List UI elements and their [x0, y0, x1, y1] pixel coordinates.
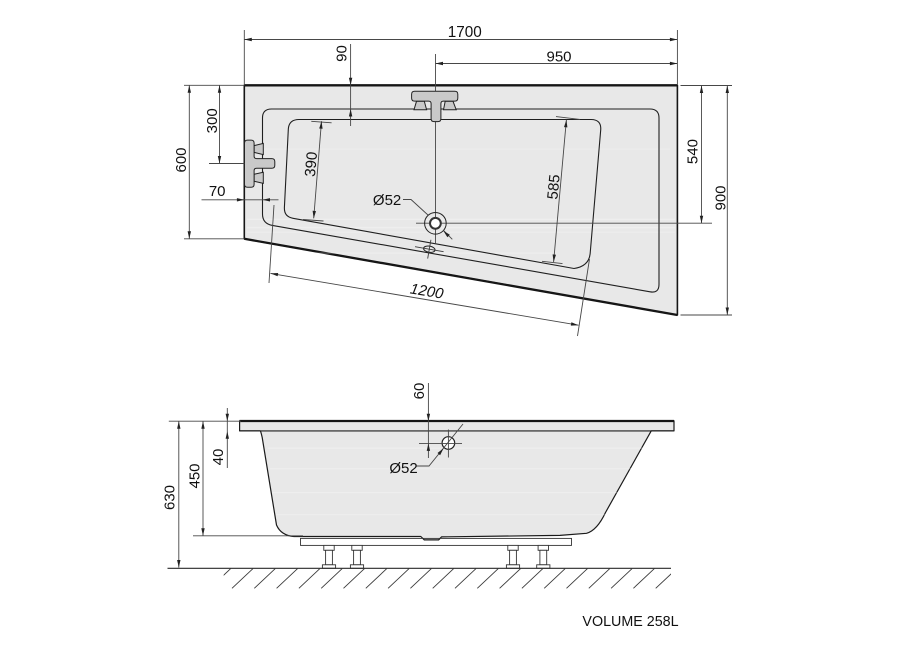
svg-text:540: 540: [685, 139, 702, 164]
svg-text:630: 630: [162, 485, 179, 510]
svg-text:300: 300: [204, 108, 221, 133]
svg-text:600: 600: [173, 147, 190, 172]
svg-text:90: 90: [334, 45, 351, 62]
svg-text:390: 390: [302, 151, 321, 177]
svg-text:900: 900: [712, 185, 729, 210]
svg-text:1700: 1700: [448, 24, 482, 41]
svg-text:1200: 1200: [409, 280, 445, 302]
svg-text:Ø52: Ø52: [373, 192, 401, 209]
svg-text:Ø52: Ø52: [389, 460, 417, 477]
svg-text:450: 450: [187, 463, 204, 488]
svg-text:VOLUME 258L: VOLUME 258L: [582, 614, 678, 630]
svg-text:950: 950: [546, 49, 571, 66]
svg-text:40: 40: [210, 449, 227, 466]
svg-text:60: 60: [411, 383, 428, 400]
svg-text:70: 70: [209, 183, 226, 200]
svg-text:585: 585: [544, 174, 564, 201]
